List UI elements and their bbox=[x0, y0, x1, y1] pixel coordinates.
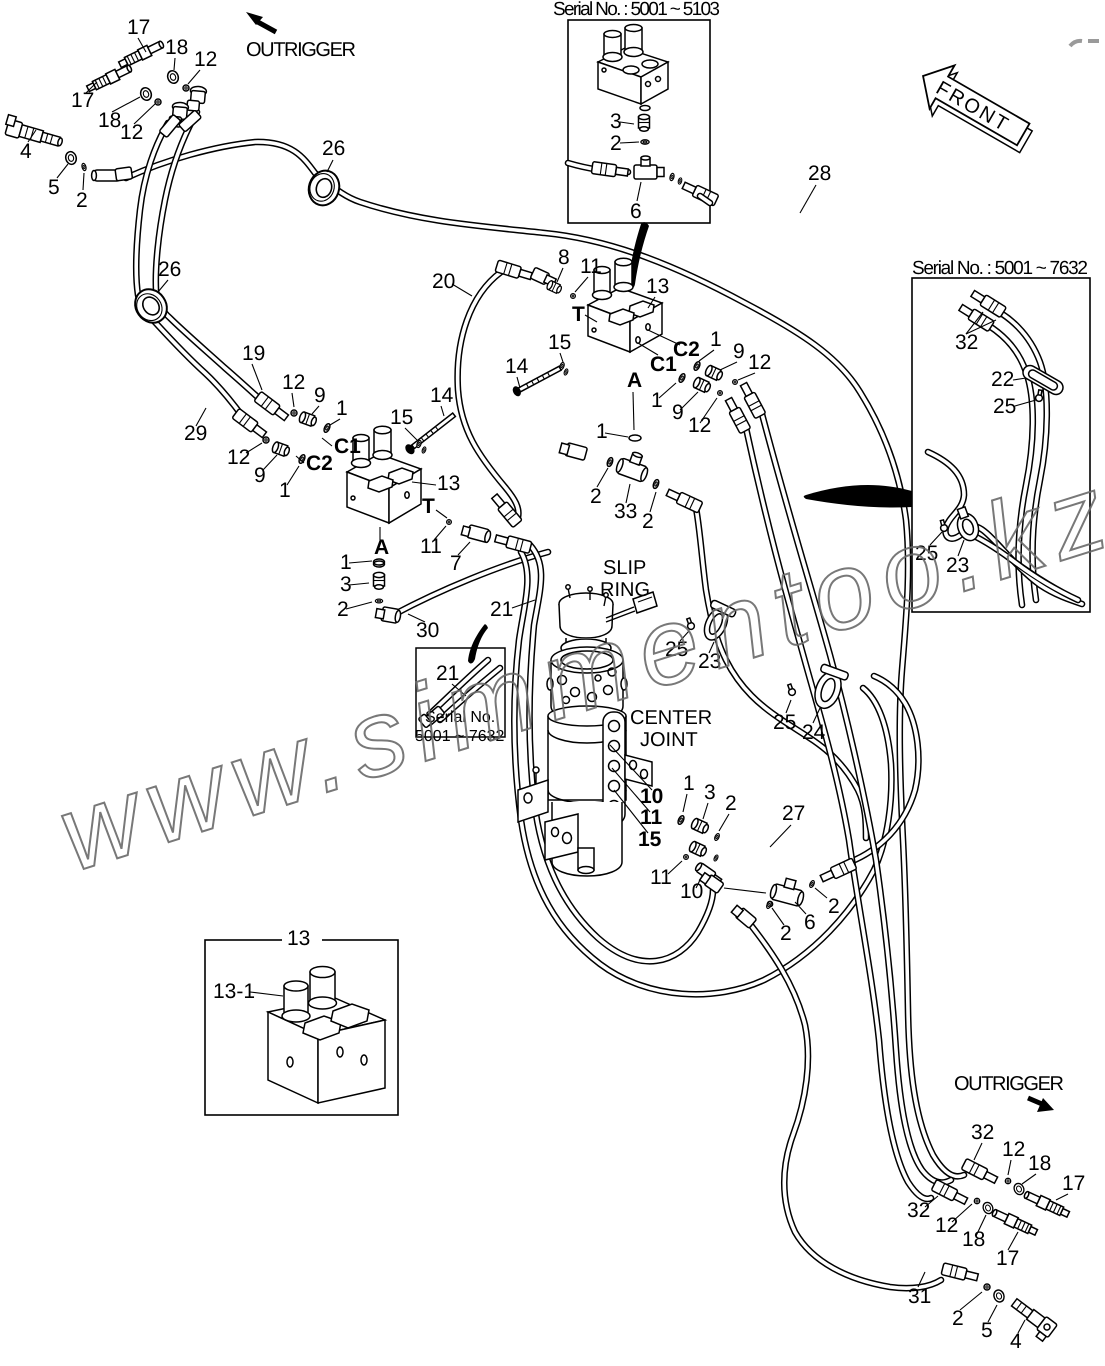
svg-text:3: 3 bbox=[610, 110, 622, 133]
svg-text:12: 12 bbox=[282, 371, 305, 394]
svg-text:10: 10 bbox=[640, 785, 663, 808]
svg-text:31: 31 bbox=[908, 1285, 931, 1308]
svg-text:1: 1 bbox=[710, 328, 722, 351]
svg-text:32: 32 bbox=[971, 1121, 994, 1144]
svg-text:12: 12 bbox=[120, 121, 143, 144]
svg-text:T: T bbox=[422, 495, 435, 518]
svg-text:11: 11 bbox=[650, 866, 672, 889]
svg-text:22: 22 bbox=[991, 368, 1014, 391]
svg-text:4: 4 bbox=[20, 140, 32, 163]
svg-text:2: 2 bbox=[642, 510, 654, 533]
svg-text:12: 12 bbox=[935, 1214, 958, 1237]
svg-text:32: 32 bbox=[955, 331, 978, 354]
svg-text:25: 25 bbox=[993, 395, 1016, 418]
svg-text:1: 1 bbox=[651, 389, 663, 412]
svg-text:2: 2 bbox=[610, 132, 622, 155]
svg-text:9: 9 bbox=[672, 401, 684, 424]
svg-text:18: 18 bbox=[98, 109, 121, 132]
svg-text:9: 9 bbox=[314, 384, 326, 407]
svg-text:17: 17 bbox=[71, 89, 94, 112]
svg-text:C1: C1 bbox=[650, 353, 677, 376]
svg-text:6: 6 bbox=[630, 200, 642, 223]
svg-text:8: 8 bbox=[558, 246, 570, 269]
svg-text:14: 14 bbox=[505, 355, 529, 378]
svg-text:11: 11 bbox=[580, 255, 602, 278]
svg-text:13: 13 bbox=[646, 275, 669, 298]
svg-text:2: 2 bbox=[590, 485, 602, 508]
svg-text:12: 12 bbox=[1002, 1138, 1025, 1161]
svg-text:12: 12 bbox=[688, 414, 711, 437]
svg-text:20: 20 bbox=[432, 270, 455, 293]
svg-text:17: 17 bbox=[127, 16, 150, 39]
svg-text:12: 12 bbox=[194, 48, 217, 71]
svg-text:10: 10 bbox=[680, 880, 703, 903]
svg-text:19: 19 bbox=[242, 342, 265, 365]
svg-text:1: 1 bbox=[336, 397, 348, 420]
svg-text:13: 13 bbox=[437, 472, 460, 495]
svg-text:C2: C2 bbox=[673, 338, 700, 361]
svg-text:2: 2 bbox=[76, 189, 88, 212]
svg-text:15: 15 bbox=[638, 828, 662, 851]
svg-text:3: 3 bbox=[704, 781, 716, 804]
svg-text:A: A bbox=[627, 369, 642, 392]
svg-text:T: T bbox=[572, 303, 585, 326]
svg-text:18: 18 bbox=[962, 1228, 985, 1251]
svg-text:2: 2 bbox=[952, 1307, 964, 1330]
svg-text:C2: C2 bbox=[306, 452, 333, 475]
svg-text:4: 4 bbox=[1010, 1330, 1022, 1353]
svg-text:1: 1 bbox=[596, 420, 608, 443]
svg-text:24: 24 bbox=[802, 721, 826, 744]
svg-text:33: 33 bbox=[614, 500, 637, 523]
svg-text:28: 28 bbox=[808, 162, 831, 185]
svg-text:OUTRIGGER: OUTRIGGER bbox=[954, 1073, 1064, 1095]
svg-text:SLIP: SLIP bbox=[603, 557, 646, 579]
svg-text:1: 1 bbox=[683, 772, 695, 795]
svg-text:17: 17 bbox=[996, 1247, 1019, 1270]
svg-text:25: 25 bbox=[773, 711, 796, 734]
svg-text:5: 5 bbox=[981, 1319, 993, 1342]
svg-text:9: 9 bbox=[733, 340, 745, 363]
svg-text:2: 2 bbox=[828, 895, 840, 918]
svg-text:6: 6 bbox=[804, 911, 816, 934]
svg-text:5: 5 bbox=[48, 176, 60, 199]
svg-text:2: 2 bbox=[780, 922, 792, 945]
svg-text:JOINT: JOINT bbox=[640, 729, 698, 751]
svg-text:2: 2 bbox=[725, 792, 737, 815]
svg-text:C1: C1 bbox=[334, 435, 361, 458]
svg-text:15: 15 bbox=[548, 331, 571, 354]
svg-text:11: 11 bbox=[420, 535, 442, 558]
svg-text:Serial No. : 5001 ~ 5103: Serial No. : 5001 ~ 5103 bbox=[553, 0, 720, 20]
svg-text:17: 17 bbox=[1062, 1172, 1085, 1195]
svg-text:30: 30 bbox=[416, 619, 439, 642]
svg-text:A: A bbox=[374, 536, 389, 559]
svg-text:OUTRIGGER: OUTRIGGER bbox=[246, 39, 356, 61]
svg-text:Serial No. : 5001 ~ 7632: Serial No. : 5001 ~ 7632 bbox=[912, 258, 1088, 279]
svg-text:27: 27 bbox=[782, 802, 805, 825]
svg-text:21: 21 bbox=[490, 598, 513, 621]
svg-text:13-1: 13-1 bbox=[213, 980, 255, 1003]
svg-text:15: 15 bbox=[390, 406, 413, 429]
svg-text:18: 18 bbox=[1028, 1152, 1051, 1175]
svg-text:11: 11 bbox=[640, 806, 663, 829]
svg-text:13: 13 bbox=[287, 927, 310, 950]
svg-text:7: 7 bbox=[450, 552, 462, 575]
svg-text:26: 26 bbox=[158, 258, 181, 281]
svg-text:32: 32 bbox=[907, 1199, 930, 1222]
svg-text:2: 2 bbox=[337, 598, 349, 621]
svg-text:18: 18 bbox=[165, 36, 188, 59]
svg-text:12: 12 bbox=[748, 351, 771, 374]
svg-text:26: 26 bbox=[322, 137, 345, 160]
svg-text:14: 14 bbox=[430, 384, 454, 407]
svg-text:9: 9 bbox=[254, 464, 266, 487]
svg-text:12: 12 bbox=[227, 446, 250, 469]
